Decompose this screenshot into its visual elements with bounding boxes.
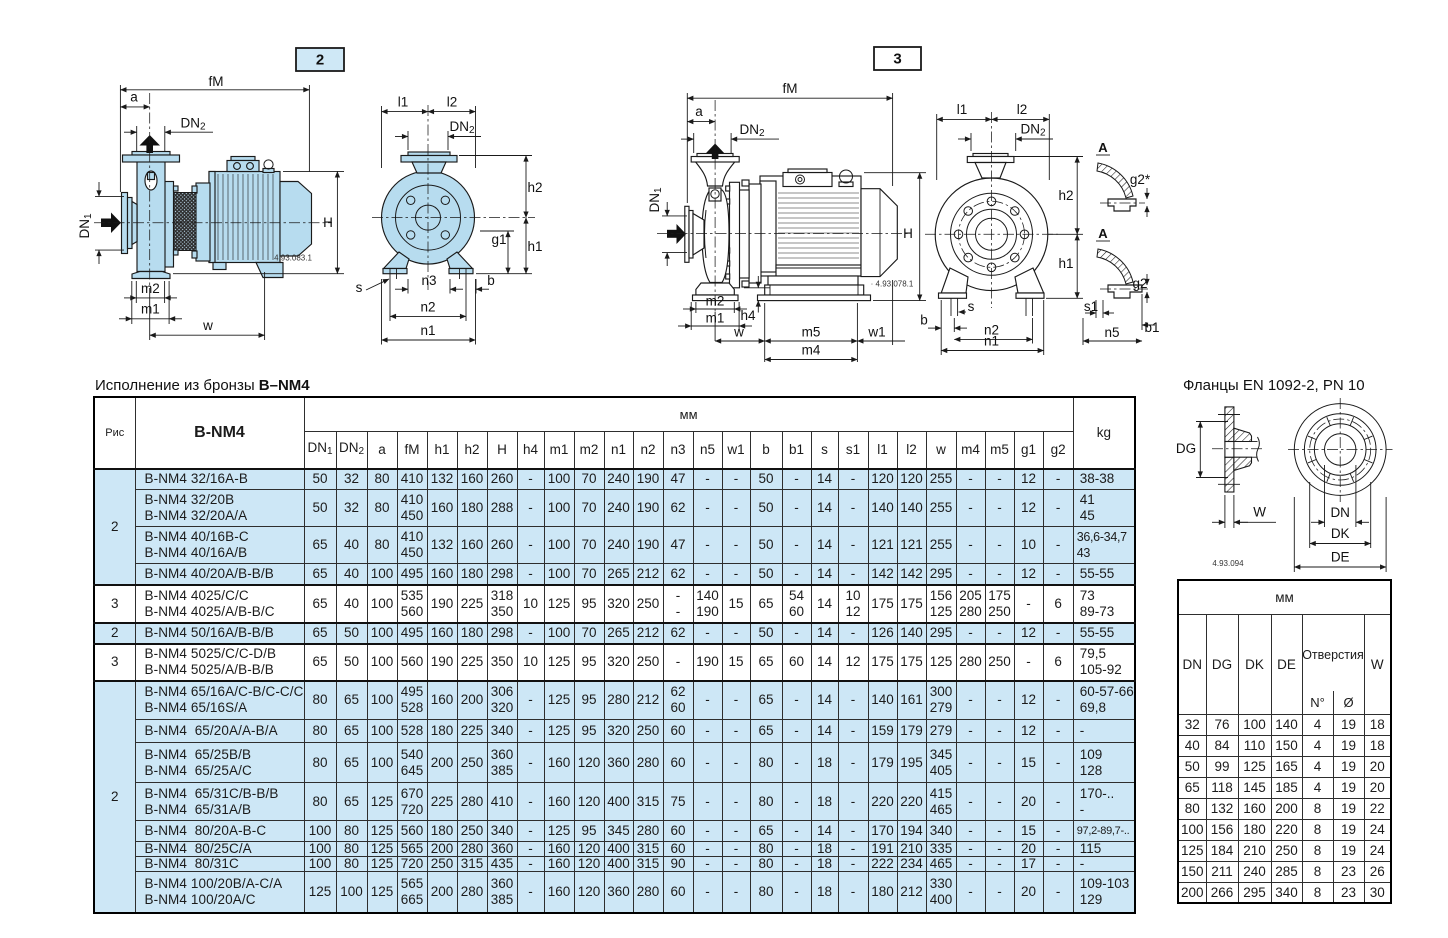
svg-text:m4: m4 — [802, 343, 821, 358]
svg-text:s: s — [968, 299, 975, 314]
svg-text:b1: b1 — [1144, 320, 1159, 335]
svg-text:m2: m2 — [141, 281, 160, 296]
svg-text:l1: l1 — [398, 95, 409, 110]
svg-text:DN2: DN2 — [180, 116, 206, 133]
svg-text:w1: w1 — [867, 325, 885, 340]
svg-text:h2: h2 — [1058, 188, 1073, 203]
svg-text:n1: n1 — [420, 323, 435, 338]
svg-text:s1: s1 — [1084, 299, 1098, 314]
svg-text:DN2: DN2 — [1020, 122, 1046, 139]
svg-text:fM: fM — [209, 74, 224, 89]
svg-text:DN1: DN1 — [77, 213, 94, 239]
svg-text:DN1: DN1 — [647, 187, 664, 213]
svg-text:n5: n5 — [1104, 325, 1119, 340]
svg-text:DN2: DN2 — [449, 119, 475, 136]
svg-text:DG: DG — [1176, 441, 1196, 456]
svg-text:l1: l1 — [957, 102, 968, 117]
svg-text:n3: n3 — [421, 273, 436, 288]
svg-text:a: a — [130, 90, 138, 105]
svg-text:H: H — [323, 215, 333, 230]
svg-text:a: a — [695, 104, 703, 119]
svg-text:b: b — [920, 313, 928, 328]
svg-text:4.93.083.1: 4.93.083.1 — [274, 254, 312, 263]
svg-text:3: 3 — [893, 51, 901, 68]
svg-text:H: H — [903, 226, 913, 241]
svg-text:m2: m2 — [706, 294, 725, 309]
svg-text:W: W — [1253, 505, 1266, 520]
svg-text:l2: l2 — [447, 95, 458, 110]
svg-text:A: A — [1098, 140, 1108, 155]
svg-text:w: w — [733, 325, 744, 340]
svg-text:b: b — [487, 273, 495, 288]
svg-text:m1: m1 — [141, 302, 160, 317]
svg-text:DE: DE — [1331, 550, 1350, 565]
svg-text:g1: g1 — [491, 232, 506, 247]
svg-text:2: 2 — [316, 52, 324, 69]
svg-text:m5: m5 — [802, 325, 821, 340]
svg-text:n2: n2 — [420, 300, 435, 315]
svg-text:g2*: g2* — [1130, 172, 1151, 187]
svg-text:g2: g2 — [1132, 276, 1147, 291]
svg-text:h4: h4 — [740, 308, 756, 323]
svg-text:fM: fM — [783, 81, 798, 96]
svg-text:DK: DK — [1331, 526, 1350, 541]
svg-text:4.93.094: 4.93.094 — [1212, 559, 1244, 568]
svg-text:h1: h1 — [527, 239, 542, 254]
svg-text:DN: DN — [1330, 505, 1350, 520]
svg-text:h2: h2 — [527, 180, 542, 195]
svg-text:n1: n1 — [984, 334, 999, 349]
svg-text:l2: l2 — [1017, 102, 1028, 117]
svg-text:w: w — [202, 318, 213, 333]
svg-text:A: A — [1098, 226, 1108, 241]
svg-text:h1: h1 — [1058, 256, 1073, 271]
svg-text:s: s — [356, 280, 363, 295]
svg-text:DN2: DN2 — [739, 122, 765, 139]
